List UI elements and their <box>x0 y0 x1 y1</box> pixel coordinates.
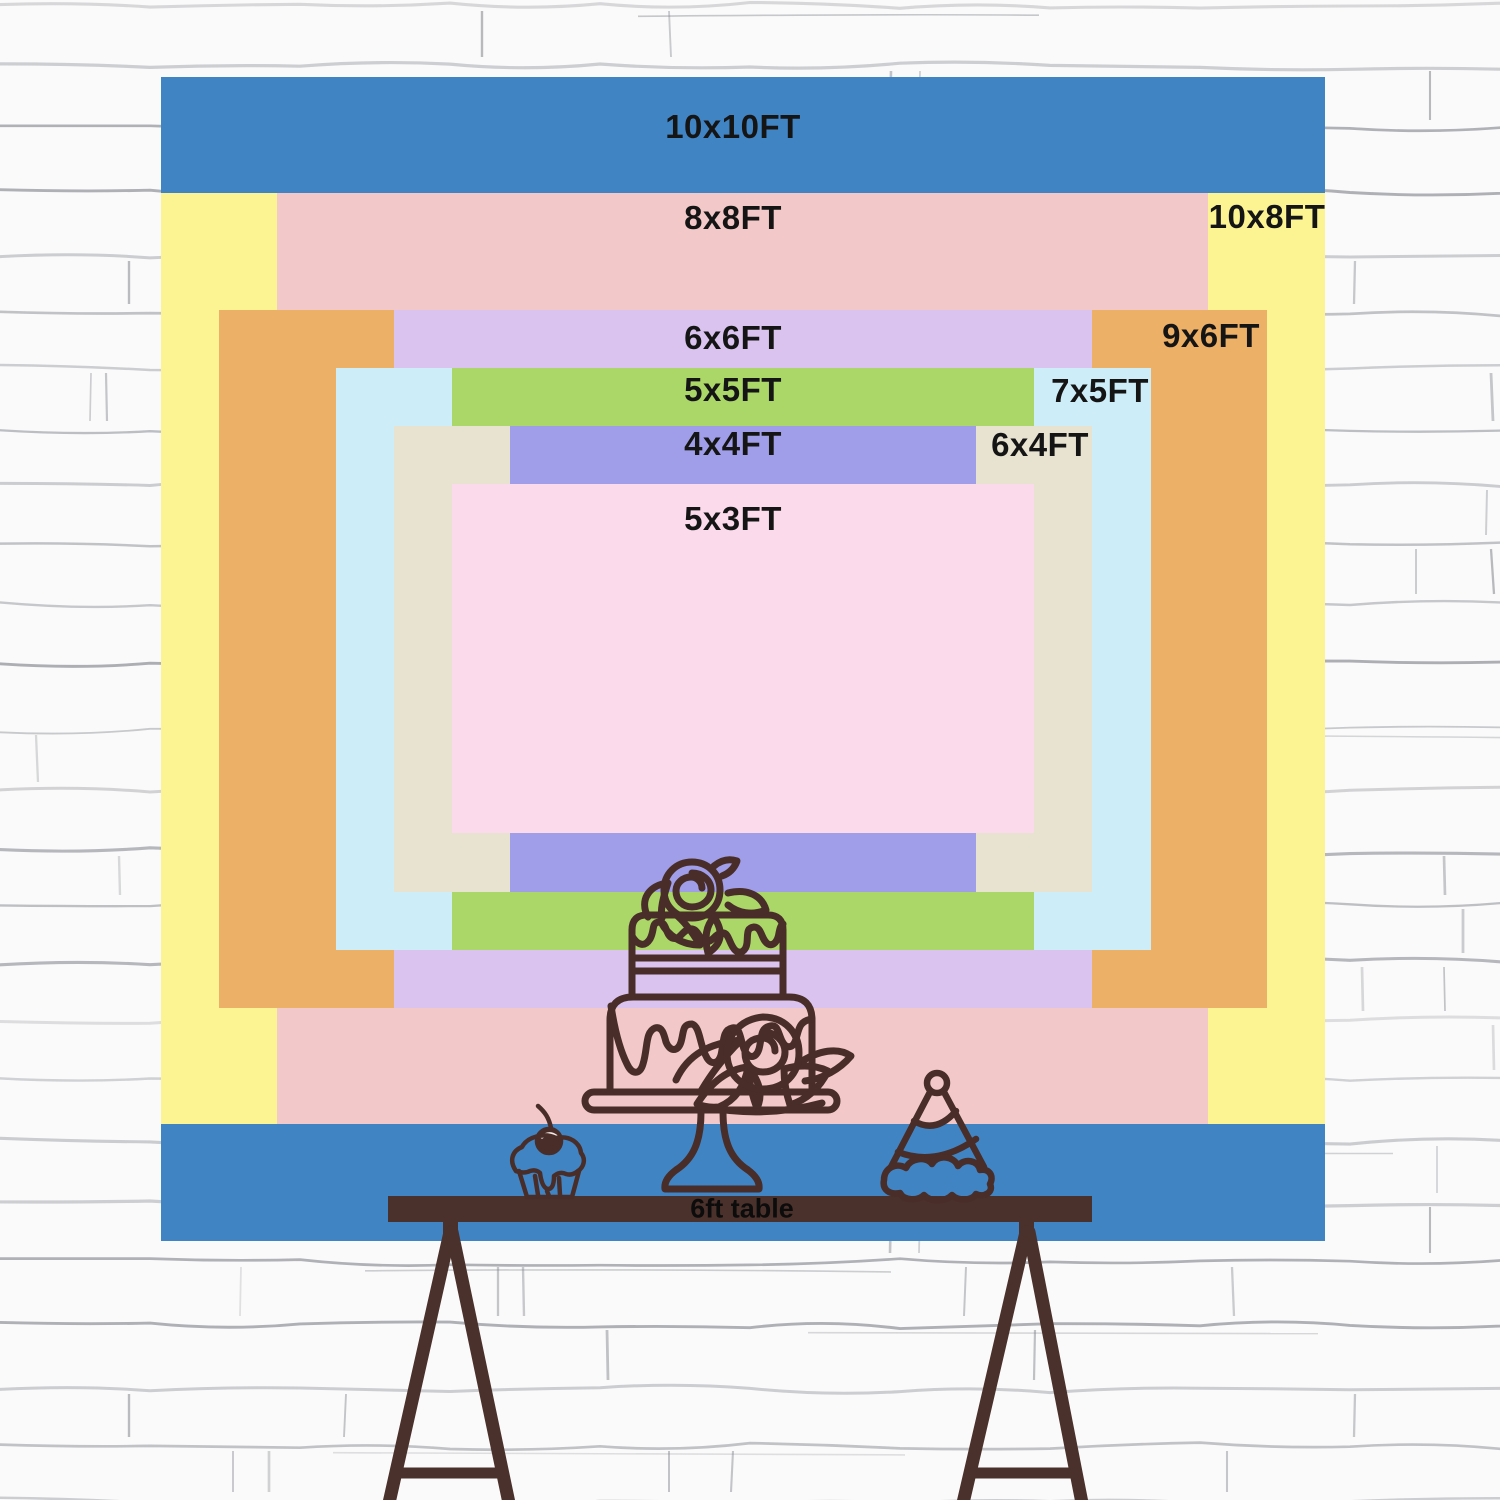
table-length-label: 6ft table <box>690 1194 794 1225</box>
table-leg-left-outer <box>389 1232 450 1500</box>
cupcake-pleat-2 <box>547 1191 549 1196</box>
cupcake-icon <box>512 1106 584 1197</box>
table-leg-left-inner <box>452 1232 509 1500</box>
cake-rose-spiral <box>745 1032 785 1072</box>
table-leg-right-outer <box>1029 1232 1082 1500</box>
trestle-table <box>388 1196 1092 1500</box>
party-hat-brim <box>884 1157 992 1200</box>
party-hat-icon <box>884 1073 992 1200</box>
cake-stand-stem <box>665 1112 759 1189</box>
cake-top-leaf-right <box>728 892 766 914</box>
table-scene <box>0 0 1500 1500</box>
table-leg-right-inner <box>963 1232 1026 1500</box>
cupcake-pleat-3 <box>559 1178 560 1195</box>
table-legs-group <box>389 1232 1082 1500</box>
cake-icon <box>585 860 851 1189</box>
party-hat-stripe-2 <box>898 1139 976 1157</box>
cake-top-rose-spiral <box>676 873 711 907</box>
cherry-stem <box>538 1106 551 1128</box>
cupcake-pleat-1 <box>535 1176 538 1195</box>
backdrop-size-chart: 10x10FT10x8FT8x8FT9x6FT6x6FT7x5FT5x5FT6x… <box>0 0 1500 1500</box>
